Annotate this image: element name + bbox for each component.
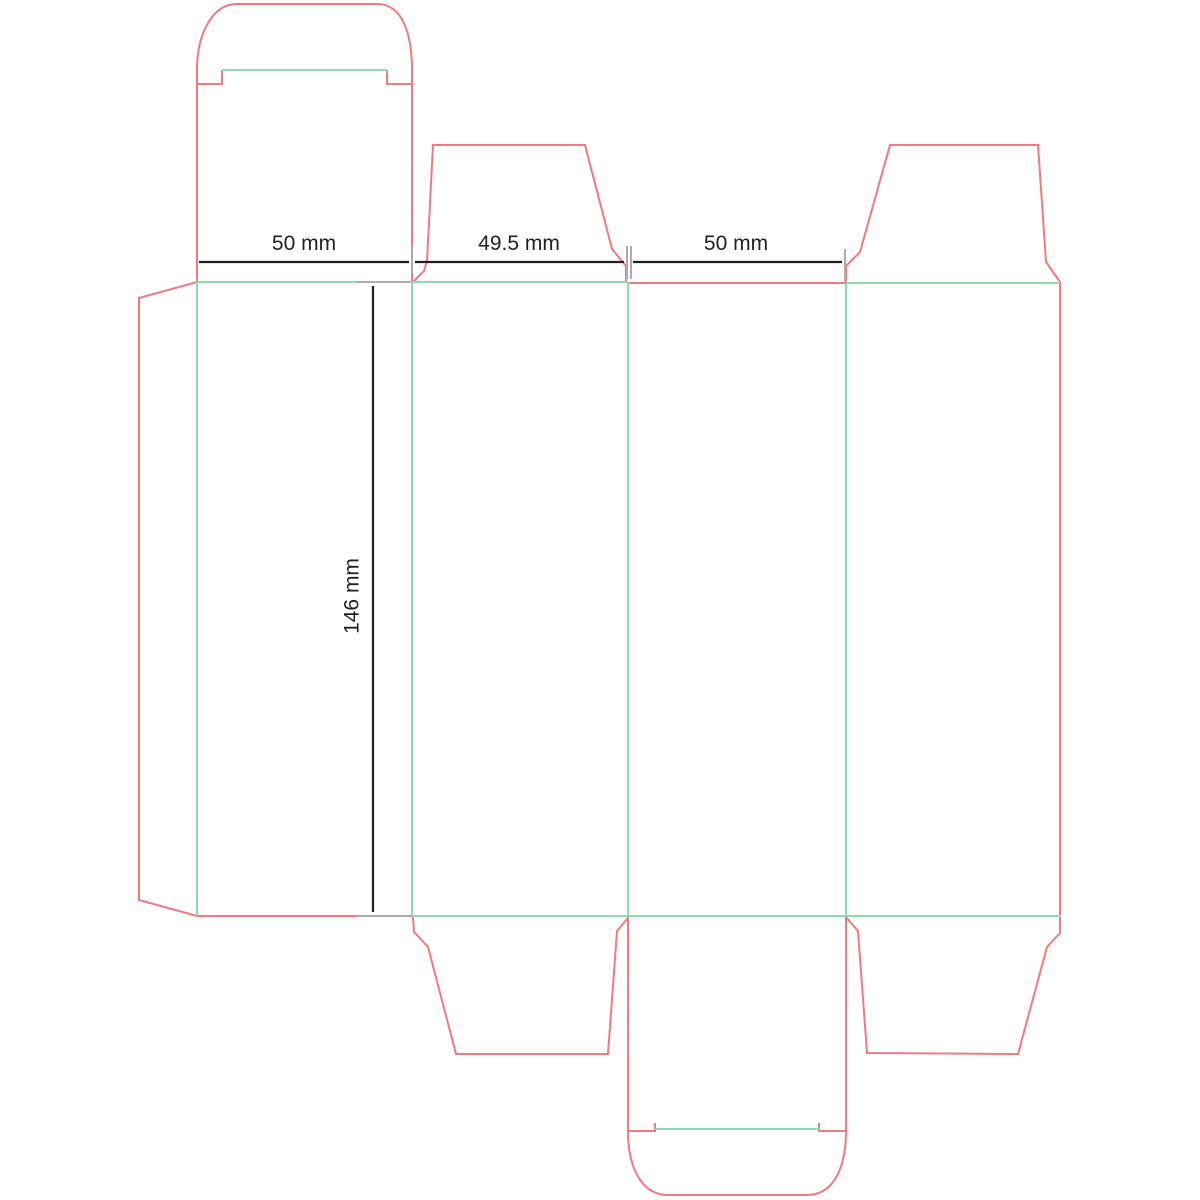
top-tuck-slit-right	[387, 66, 412, 84]
bottom-dust-flap-left-outline	[413, 917, 628, 1054]
dim-label-panel2-width: 49.5 mm	[478, 233, 560, 254]
bottom-tuck-flap-outline	[628, 1131, 846, 1195]
dim-label-panel1-width: 50 mm	[272, 233, 336, 254]
bottom-tuck-slit-right	[819, 1123, 846, 1131]
top-tuck-slit-left	[197, 66, 222, 84]
bottom-dust-flap-right-outline	[846, 917, 1060, 1054]
glue-flap-outline	[139, 282, 197, 916]
dieline-canvas: 50 mm 49.5 mm 50 mm 146 mm	[0, 0, 1200, 1200]
bottom-tuck-slit-left	[628, 1123, 655, 1131]
dieline-paths	[139, 4, 1060, 1195]
top-tuck-flap-outline	[197, 4, 412, 66]
dieline-svg	[0, 0, 1200, 1200]
top-dust-flap-right-outline	[846, 145, 1060, 283]
dim-label-body-height: 146 mm	[342, 558, 363, 634]
dim-label-panel3-width: 50 mm	[704, 233, 768, 254]
